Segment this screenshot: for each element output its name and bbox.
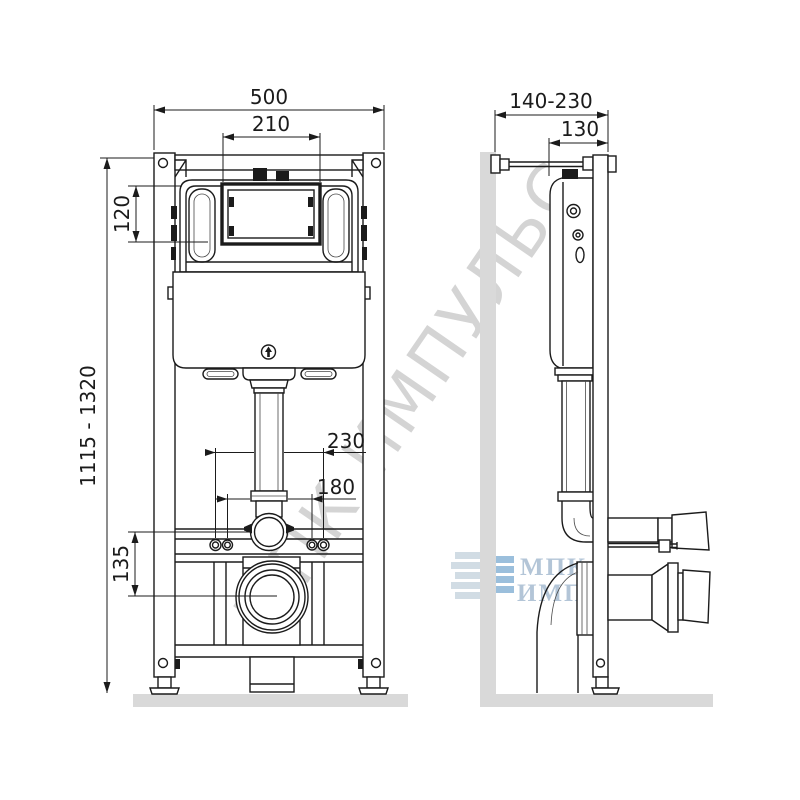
fixing-rod	[608, 544, 659, 548]
waste-flange-side	[577, 562, 594, 635]
technical-drawing-page: МПК ИМПУЛЬС МПК ИМПУЛЬС	[0, 0, 800, 800]
flush-valve-collar	[250, 380, 288, 388]
side-clip	[361, 206, 367, 219]
dim-label-230: 230	[327, 429, 365, 453]
foot-side-plate	[592, 688, 619, 694]
frame-top-bar	[175, 155, 363, 170]
rail-hole	[372, 659, 381, 668]
waste-outlet-band	[668, 563, 678, 632]
floor-side	[480, 694, 713, 707]
panel-clip	[308, 226, 313, 236]
rail-hole	[372, 159, 381, 168]
rod-nut-small	[659, 540, 670, 552]
installation-frame-drawing: МПК ИМПУЛЬС МПК ИМПУЛЬС	[0, 0, 800, 800]
dim-install-height: 1115 - 1320	[76, 158, 154, 693]
fitting	[573, 230, 583, 240]
dim-label-140-230: 140-230	[509, 89, 593, 113]
tank-tab-left	[203, 369, 238, 379]
tank-tab-left-inner	[207, 372, 234, 377]
foot-right-plate	[359, 688, 388, 694]
side-clip	[361, 225, 367, 241]
dim-label-500: 500	[250, 85, 288, 109]
rail-clip	[358, 659, 363, 669]
floor-front	[133, 694, 408, 707]
valve-flange-side	[555, 368, 594, 375]
wall-section	[480, 152, 496, 694]
cistern-cap	[562, 169, 578, 179]
waste-outlet-neck	[678, 573, 683, 620]
dim-label-210: 210	[252, 112, 290, 136]
frame-rail-side	[593, 155, 608, 677]
waste-outlet-flare	[652, 564, 668, 631]
coupling-side	[558, 492, 594, 501]
rod-nut	[583, 157, 593, 170]
valve-collar-side	[558, 375, 592, 381]
foot-left-stem	[158, 677, 171, 688]
dim-panel-width: 210	[223, 112, 320, 182]
waste-outlet-pipe	[608, 575, 652, 620]
rail-hole	[159, 159, 168, 168]
flush-pipe-bell	[251, 514, 288, 551]
foot-left-plate	[150, 688, 179, 694]
dim-label-180: 180	[317, 475, 355, 499]
foot-right-stem	[367, 677, 380, 688]
flush-pipe	[255, 393, 283, 491]
dim-label-130: 130	[561, 117, 599, 141]
flush-valve-flange	[243, 368, 295, 380]
mount-bolt	[210, 540, 221, 551]
front-view	[133, 153, 408, 707]
side-clip	[171, 206, 177, 219]
rail-hole-side	[597, 659, 605, 667]
access-panel-window	[222, 184, 320, 244]
panel-clip	[229, 226, 234, 236]
flush-outlet-pipe	[608, 518, 658, 542]
wall-anchor-plate	[491, 155, 500, 173]
side-clip	[362, 247, 367, 260]
waste-outlet	[236, 561, 308, 633]
mount-bolt	[223, 540, 233, 550]
rail-clip	[175, 659, 180, 669]
panel-clip	[308, 197, 313, 207]
flush-valve-ring	[254, 388, 284, 393]
flush-elbow-arc	[574, 518, 590, 536]
foot-side-stem	[596, 677, 608, 688]
panel-clip	[229, 197, 234, 207]
flush-outlet-ring	[658, 518, 672, 542]
top-stud	[253, 168, 267, 181]
rail-hole	[159, 659, 168, 668]
rail-top-tab	[608, 156, 616, 172]
waste-outlet-cuff	[683, 570, 710, 623]
dim-label-height-range: 1115 - 1320	[76, 365, 100, 487]
dim-label-120: 120	[110, 195, 134, 233]
anchor-nut	[500, 159, 509, 170]
top-stud	[276, 171, 289, 181]
crossbar-lower	[175, 645, 363, 657]
tank-tab-right-inner	[305, 372, 332, 377]
mount-bolt	[307, 540, 317, 550]
side-clip	[171, 247, 176, 260]
side-clip	[171, 225, 177, 241]
bottom-bracket	[250, 657, 294, 692]
fill-valve-fitting	[567, 205, 580, 218]
mount-bolt	[318, 540, 329, 551]
dim-label-135: 135	[109, 545, 133, 583]
tank-tab-right	[301, 369, 336, 379]
